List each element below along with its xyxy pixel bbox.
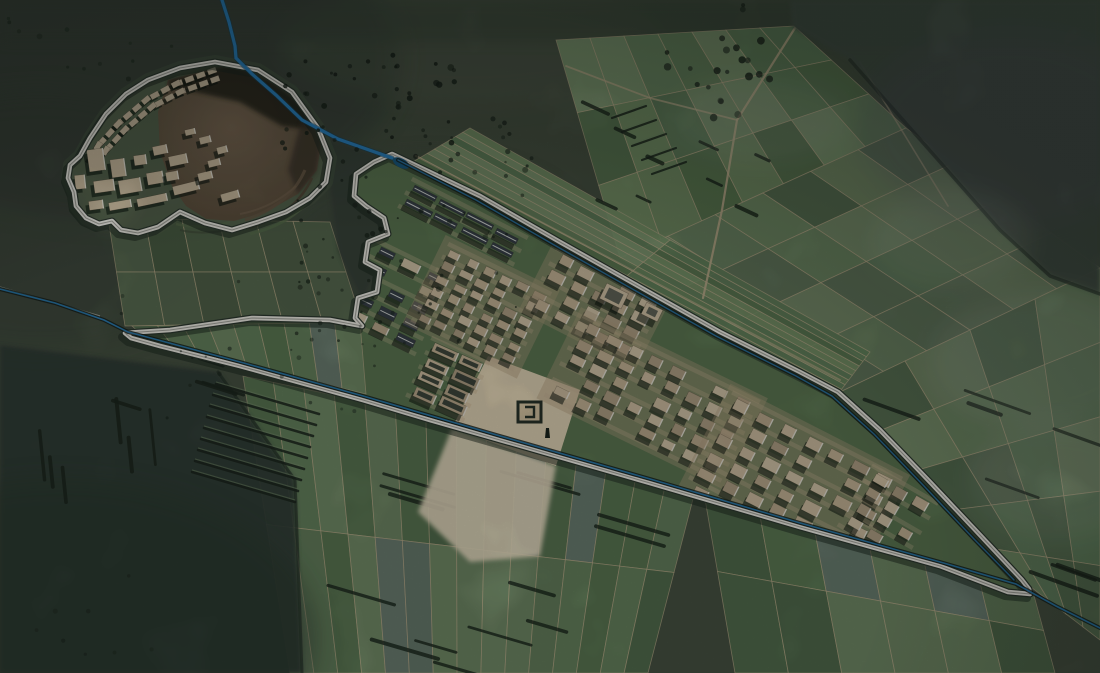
atmosphere bbox=[0, 0, 1100, 673]
aerial-reconstruction bbox=[0, 0, 1100, 673]
vignette bbox=[0, 0, 1100, 673]
site-map bbox=[0, 0, 1100, 673]
